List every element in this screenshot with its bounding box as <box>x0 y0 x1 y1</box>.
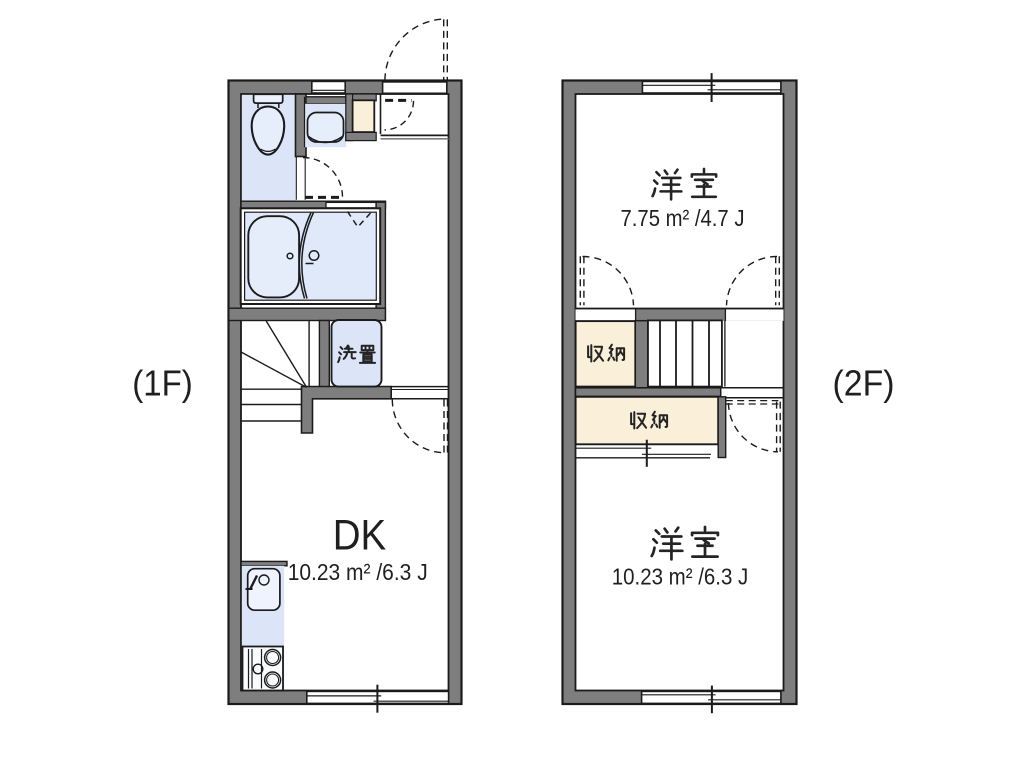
svg-text:(1F): (1F) <box>132 363 193 404</box>
svg-text:10.23 m² /6.3 J: 10.23 m² /6.3 J <box>288 559 428 585</box>
svg-text:7.75 m² /4.7 J: 7.75 m² /4.7 J <box>621 205 745 231</box>
svg-text:DK: DK <box>333 512 387 560</box>
svg-text:10.23 m² /6.3 J: 10.23 m² /6.3 J <box>612 564 749 590</box>
svg-text:(2F): (2F) <box>833 363 895 404</box>
